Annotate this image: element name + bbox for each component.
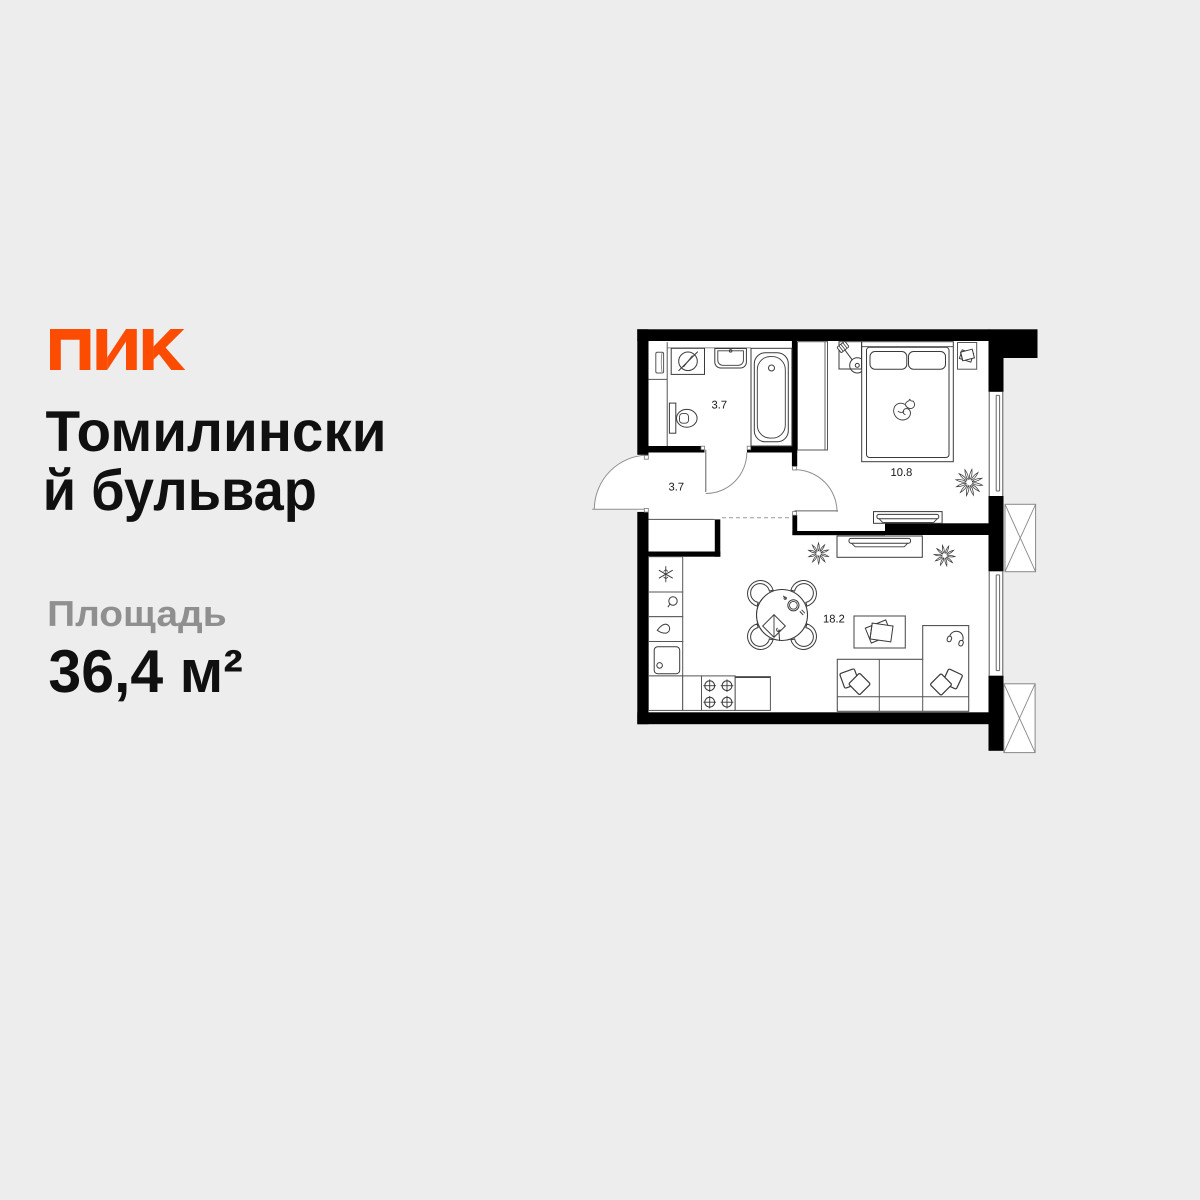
svg-text:Томилински: Томилински [46, 400, 387, 464]
svg-text:й бульвар: й бульвар [43, 459, 317, 523]
svg-text:36,4 м²: 36,4 м² [48, 637, 243, 705]
svg-text:Площадь: Площадь [47, 593, 227, 634]
